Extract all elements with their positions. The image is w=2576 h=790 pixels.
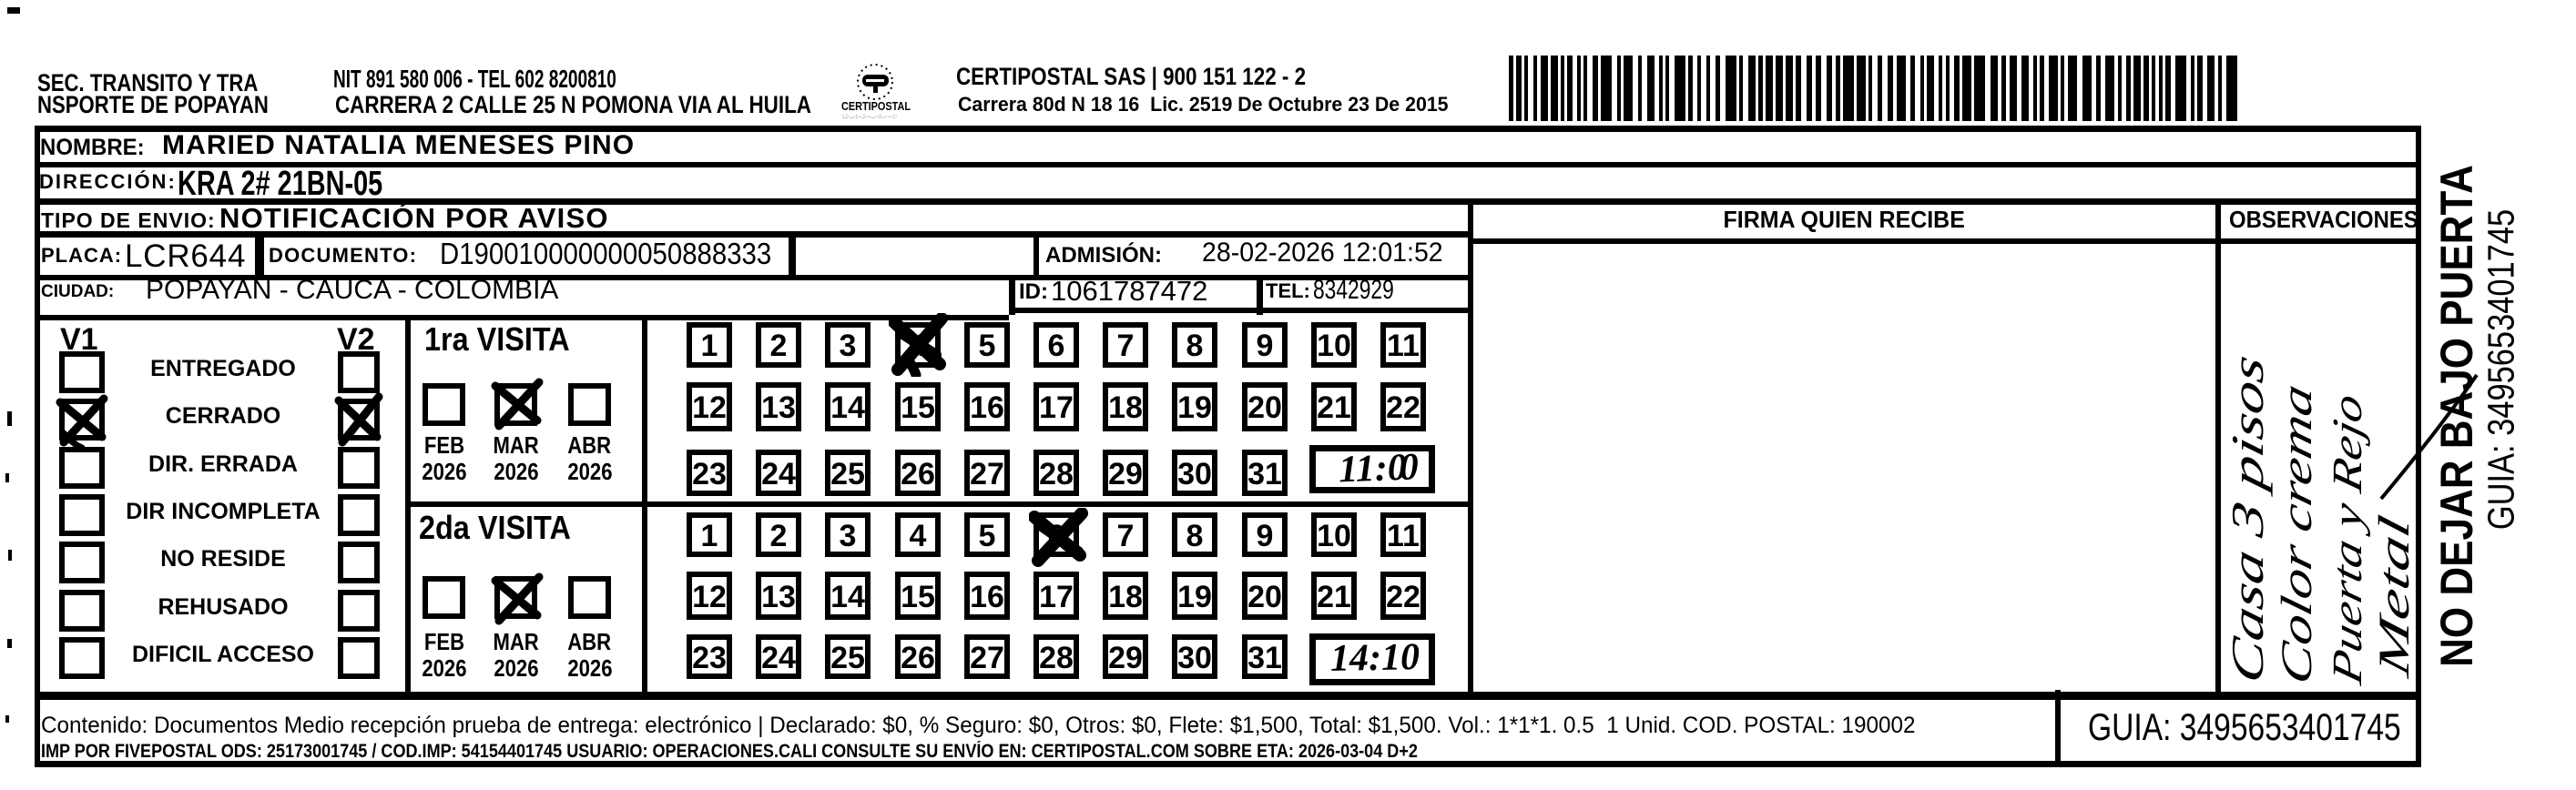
svg-text:CERTІPOSTAL: CERTІPOSTAL <box>841 99 911 113</box>
svg-text::.:·..·:··.:···..··:·.····:·: :.:·..·:··.:···..··:·.····:· <box>842 114 897 120</box>
